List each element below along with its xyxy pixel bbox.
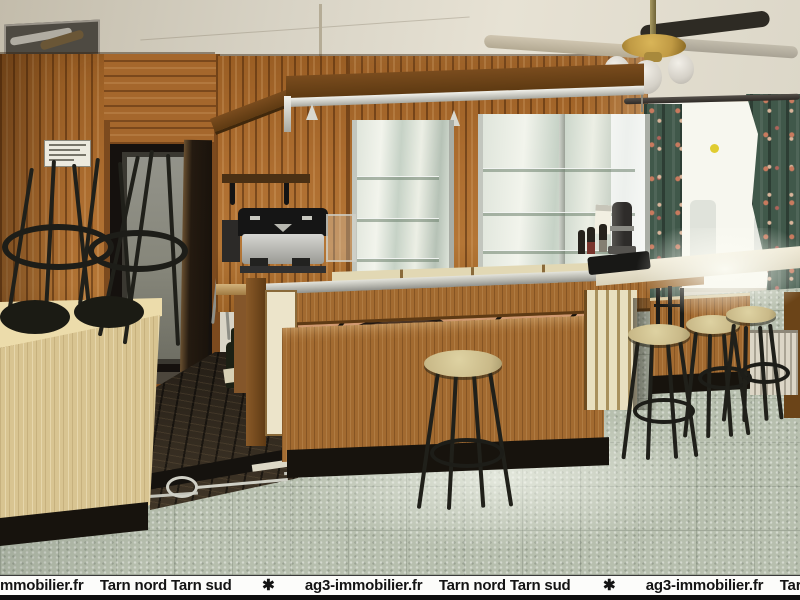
bottle xyxy=(587,227,595,254)
espresso-machine-top xyxy=(238,208,328,236)
mirror-chrome-divider xyxy=(559,114,565,284)
canopy-spotlight xyxy=(306,104,318,120)
canopy-chrome-post xyxy=(284,96,291,132)
watermark-text: Tarn nord Tarn sud xyxy=(100,576,232,595)
fan-light-globe xyxy=(668,54,694,84)
inverted-stool-seat xyxy=(0,300,70,334)
shelf-bracket xyxy=(230,183,235,205)
stool-seat xyxy=(424,350,502,377)
espresso-label xyxy=(250,216,260,220)
stool-footring xyxy=(740,362,790,384)
stool-seat xyxy=(726,306,776,323)
glass-shelf xyxy=(483,168,635,172)
photo-bar-interior: mmobilier.fr Tarn nord Tarn sud ✱ ag3-im… xyxy=(0,0,800,600)
watermark-text: Tarn nord Tarn xyxy=(780,576,800,595)
coffee-percolator xyxy=(612,202,632,248)
glass-shelf xyxy=(357,258,439,262)
backbar-mirror-unit xyxy=(352,120,454,288)
espresso-drip-tray xyxy=(240,266,326,273)
glass-shelf xyxy=(357,218,439,222)
shelf-bracket xyxy=(284,183,289,205)
watermark-bottom-bar xyxy=(0,595,800,600)
watermark-text: mmobilier.fr xyxy=(0,576,83,595)
watermark-bar: mmobilier.fr Tarn nord Tarn sud ✱ ag3-im… xyxy=(0,575,800,595)
stool-footring xyxy=(88,230,188,272)
watermark-text: ag3-immobilier.fr xyxy=(305,576,422,595)
bottle xyxy=(599,224,607,252)
glass-display-case xyxy=(326,214,356,262)
espresso-logo xyxy=(274,224,292,232)
window-light-wash xyxy=(635,228,800,320)
watermark-text: Tarn nord Tarn sud xyxy=(439,576,571,595)
pine-wall-over-door xyxy=(104,54,220,122)
watermark-separator-icon: ✱ xyxy=(603,576,615,595)
percolator-band xyxy=(610,226,634,231)
bottle xyxy=(578,230,585,254)
glass-shelf xyxy=(357,176,439,180)
left-counter-front xyxy=(0,312,162,524)
inverted-stool-seat xyxy=(74,296,144,328)
stool-seat xyxy=(628,324,690,345)
espresso-label xyxy=(302,216,312,220)
stool-footring xyxy=(430,438,504,468)
watermark-text: ag3-immobilier.fr xyxy=(646,576,763,595)
floor-cable-coil xyxy=(166,476,198,498)
bar-left-post xyxy=(246,278,266,446)
watermark-separator-icon: ✱ xyxy=(262,576,274,595)
wall-shelf xyxy=(222,174,310,183)
window-yellow-flower xyxy=(710,144,719,153)
